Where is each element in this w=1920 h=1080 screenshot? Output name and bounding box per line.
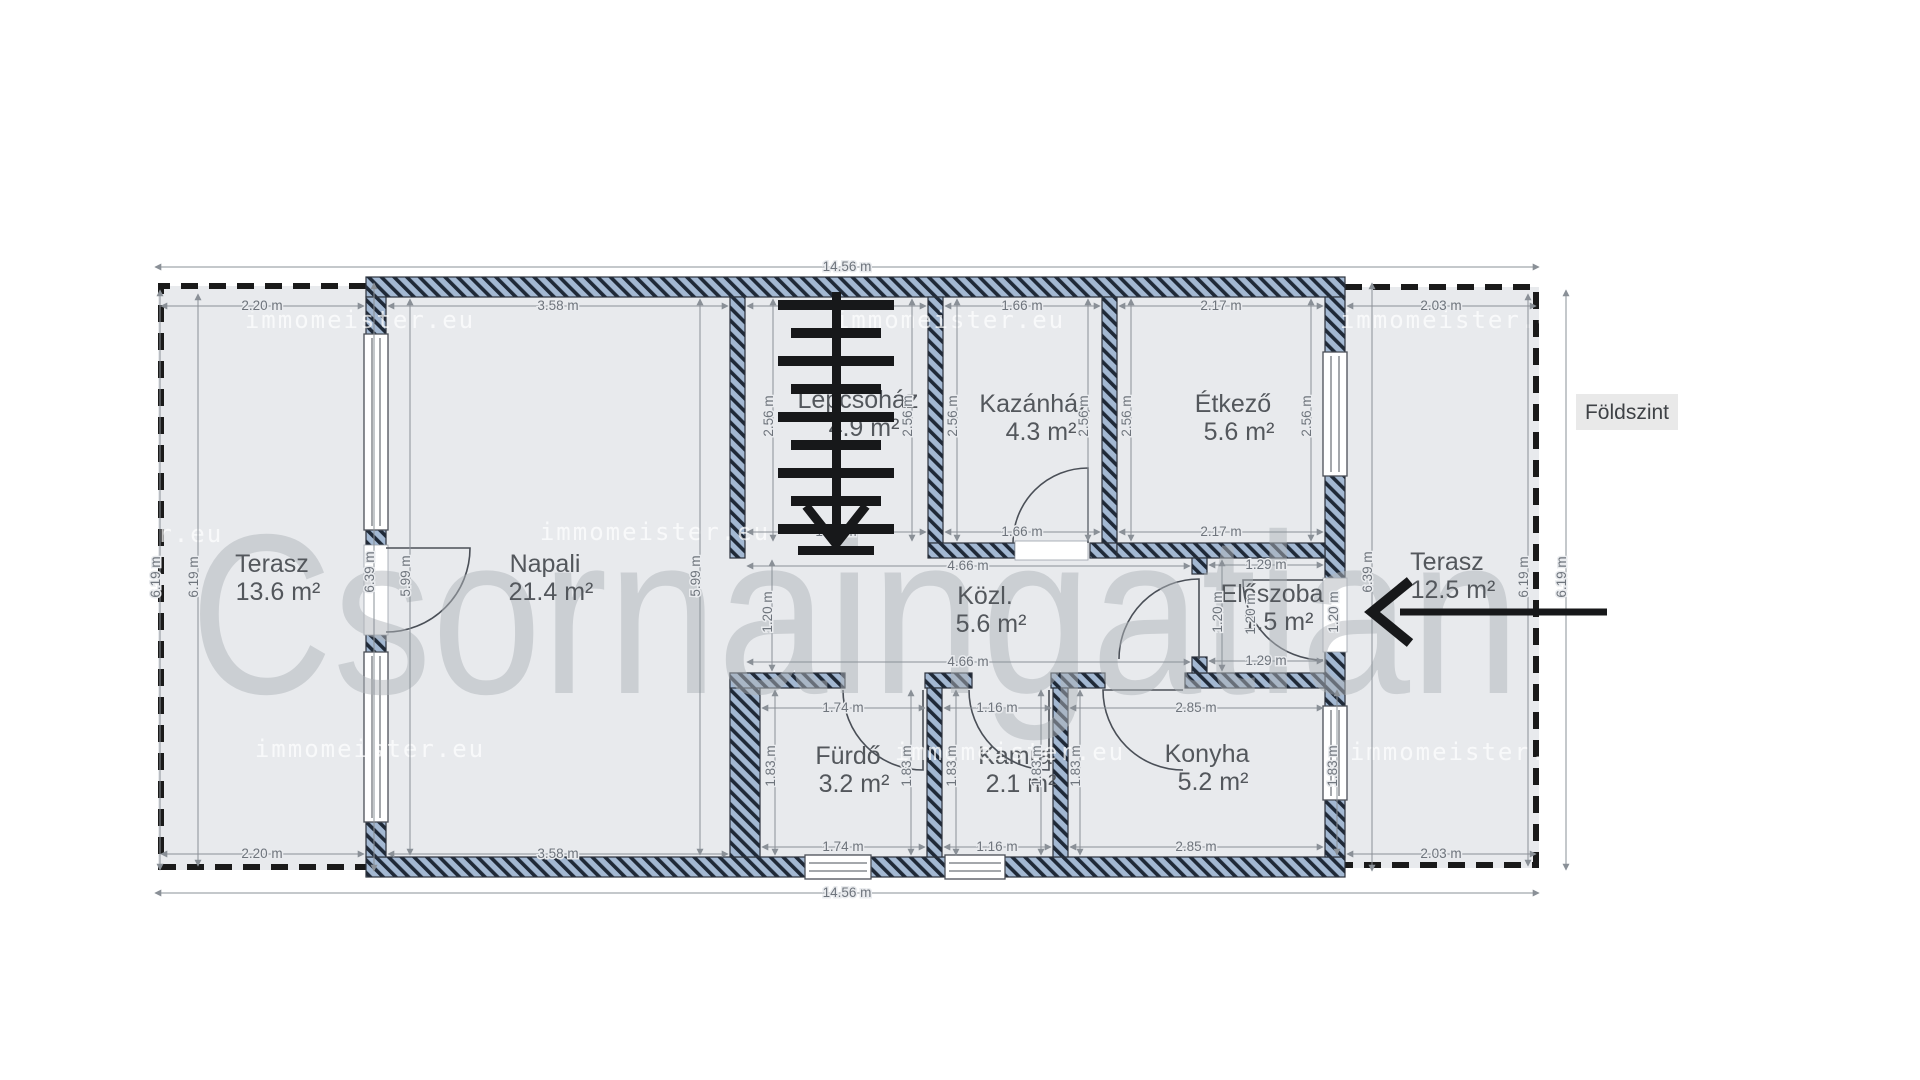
dimension-label: 2.20 m xyxy=(241,298,282,313)
dimension-label: 4.66 m xyxy=(947,558,988,573)
site-watermark: immomeister.eu xyxy=(540,518,770,546)
dimension-label: 1.20 m xyxy=(1210,591,1225,632)
site-watermark: immomeister.eu xyxy=(1350,738,1580,766)
room-label: Előszoba xyxy=(1221,580,1324,608)
dimension-label: 1.83 m xyxy=(1325,745,1340,786)
dimension-label: 2.20 m xyxy=(241,846,282,861)
room-label: Étkező xyxy=(1195,389,1271,418)
dimension-label: 1.66 m xyxy=(1001,524,1042,539)
room-area-label: 21.4 m² xyxy=(509,578,594,606)
dimension-label: 6.19 m xyxy=(186,556,201,597)
dimension-label: 6.39 m xyxy=(362,551,377,592)
dimension-label: 1.29 m xyxy=(1245,557,1286,572)
dimension-label: 1.83 m xyxy=(944,745,959,786)
dimension-label: 14.56 m xyxy=(823,259,872,274)
dimension-label: 1.29 m xyxy=(1245,653,1286,668)
floor-level-badge: Földszint xyxy=(1576,394,1678,430)
room-area-label: 2.1 m² xyxy=(986,770,1057,798)
room-label: Napali xyxy=(510,550,581,578)
window xyxy=(945,855,1005,879)
dimension-label: 4.66 m xyxy=(947,654,988,669)
dimension-label: 6.19 m xyxy=(1554,556,1569,597)
room-label: Konyha xyxy=(1165,740,1250,768)
dimension-label: 3.58 m xyxy=(537,846,578,861)
dimension-label: 1.83 m xyxy=(763,745,778,786)
dimension-label: 1.74 m xyxy=(822,839,863,854)
room-area-label: 5.6 m² xyxy=(956,610,1027,638)
room-area-label: 3.2 m² xyxy=(819,770,890,798)
dimension-label: 2.85 m xyxy=(1175,700,1216,715)
window xyxy=(805,855,871,879)
room-area-label: 4.3 m² xyxy=(1006,418,1077,446)
dimension-label: 3.58 m xyxy=(537,298,578,313)
dimension-label: 2.03 m xyxy=(1420,846,1461,861)
dimension-label: 2.56 m xyxy=(900,395,915,436)
dimension-label: 1.83 m xyxy=(1029,745,1044,786)
dimension-label: 6.39 m xyxy=(1360,551,1375,592)
dimension-label: 6.19 m xyxy=(148,556,163,597)
dimension-label: 1.20 m xyxy=(760,591,775,632)
dimension-label: 1.20 m xyxy=(1326,591,1341,632)
dimension-label: 1.20 m xyxy=(1243,593,1258,634)
dimension-label: 5.99 m xyxy=(688,555,703,596)
dimension-label: 5.99 m xyxy=(398,555,413,596)
dimension-label: 1.66 m xyxy=(1001,298,1042,313)
floor-level-label: Földszint xyxy=(1585,401,1669,424)
room-label: Terasz xyxy=(235,550,309,578)
dimension-label: 1.74 m xyxy=(822,700,863,715)
site-watermark: immomeister.eu xyxy=(0,520,223,548)
dimension-label: 2.56 m xyxy=(1076,395,1091,436)
dimension-label: 2.17 m xyxy=(1200,524,1241,539)
site-watermark: immomeister.eu xyxy=(255,735,485,763)
dimension-label: 2.85 m xyxy=(1175,839,1216,854)
window xyxy=(1323,352,1347,476)
room-label: Kazánház xyxy=(979,390,1090,418)
dimension-label: 2.56 m xyxy=(761,395,776,436)
dimension-label: 2.03 m xyxy=(1420,298,1461,313)
dimension-label: 2.56 m xyxy=(1119,395,1134,436)
dimension-label: 1.16 m xyxy=(976,700,1017,715)
room-label: Fürdő xyxy=(815,742,880,770)
room-label: Terasz xyxy=(1410,548,1484,576)
dimension-label: 2.17 m xyxy=(1200,298,1241,313)
dimension-label: 14.56 m xyxy=(823,885,872,900)
room-area-label: 12.5 m² xyxy=(1411,576,1496,604)
dimension-label: 2.56 m xyxy=(945,395,960,436)
dimension-label: 2.56 m xyxy=(1299,395,1314,436)
dimension-label: 1.83 m xyxy=(1068,745,1083,786)
site-watermark: immomeister.eu xyxy=(895,738,1125,766)
room-label: Közl. xyxy=(957,582,1013,610)
room-area-label: 5.6 m² xyxy=(1204,418,1275,446)
dimension-label: 1.83 m xyxy=(899,745,914,786)
floor-plan-svg: Csornaingatlan Terasz13.6 m²Napali21.4 m… xyxy=(0,0,1920,1080)
dimension-label: 1.16 m xyxy=(976,839,1017,854)
room-area-label: 13.6 m² xyxy=(236,578,321,606)
room-area-label: 5.2 m² xyxy=(1178,768,1249,796)
dimension-label: 6.19 m xyxy=(1516,556,1531,597)
